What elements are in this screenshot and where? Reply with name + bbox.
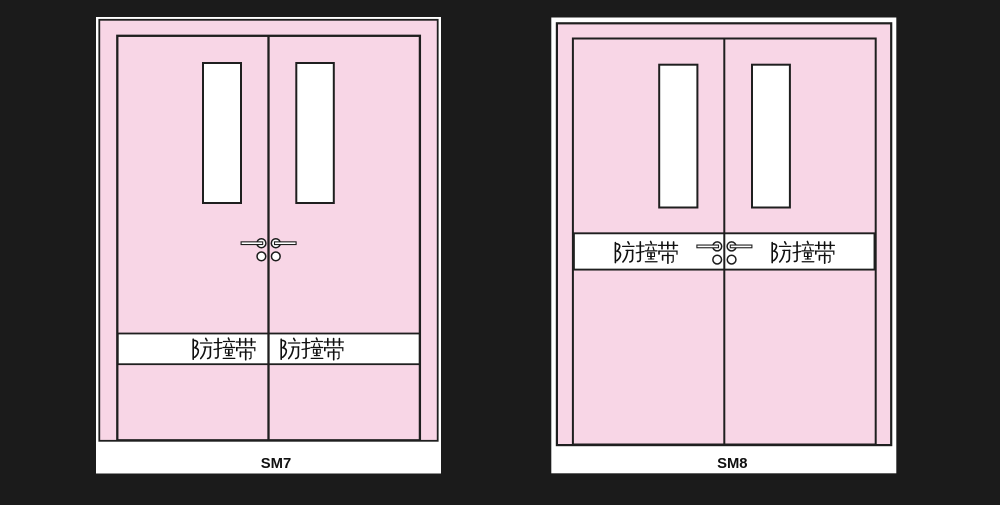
svg-text:SM8: SM8: [717, 456, 747, 472]
svg-text:SM7: SM7: [261, 456, 291, 472]
